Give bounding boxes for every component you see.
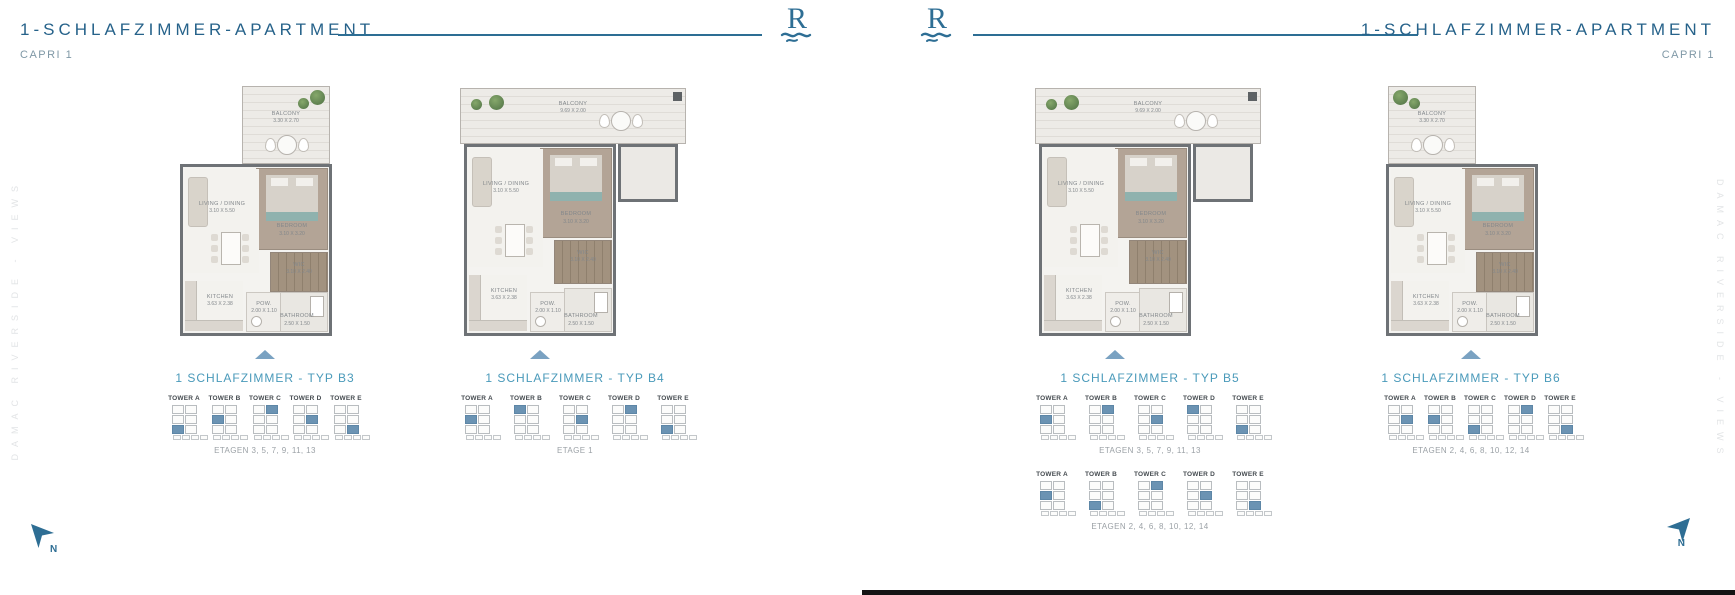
tower-label: TOWER B	[1085, 471, 1117, 478]
podium-strip	[1139, 435, 1174, 440]
walk-in-closet: WIC3.10 X 2.40	[1130, 241, 1186, 283]
unit-cell	[1548, 415, 1560, 424]
podium-strip	[613, 435, 648, 440]
unit-cell	[1102, 491, 1114, 500]
floorplan-slot-b3: BALCONY3.30 X 2.70 BEDROOM3.10 X 3.20 LI…	[162, 86, 368, 342]
north-label: N	[50, 544, 57, 555]
room-label-pow: POW.2.00 X 1.10	[247, 301, 281, 315]
room-label-bathroom: BATHROOM2.50 X 1.50	[281, 313, 313, 327]
tower-row: TOWER ATOWER BTOWER CTOWER DTOWER E	[455, 395, 695, 440]
unit-cell	[612, 415, 624, 424]
living-dining-room: LIVING / DINING3.10 X 5.50	[185, 169, 259, 273]
tower-label: TOWER B	[510, 395, 542, 402]
tower-label: TOWER C	[559, 395, 591, 402]
unit-cell	[1561, 405, 1573, 414]
unit-cell	[306, 405, 318, 414]
unit-cell	[527, 425, 539, 434]
unit-cell	[266, 415, 278, 424]
unit-cell	[563, 425, 575, 434]
kitchen: KITCHEN3.63 X 2.38	[469, 275, 527, 331]
room-label-bedroom: BEDROOM3.10 X 3.20	[257, 223, 327, 237]
apartment-unit-outline: BEDROOM3.10 X 3.20 LIVING / DINING3.10 X…	[180, 164, 332, 336]
podium-strip	[1188, 511, 1223, 516]
highlighted-unit-cell	[347, 425, 359, 434]
etagen-caption: ETAGEN 2, 4, 6, 8, 10, 12, 14	[1030, 522, 1270, 531]
highlighted-unit-cell	[1249, 501, 1261, 510]
highlighted-unit-cell	[1151, 415, 1163, 424]
bed	[266, 175, 318, 221]
unit-cell	[1249, 415, 1261, 424]
unit-cell	[478, 405, 490, 414]
unit-cell	[1089, 415, 1101, 424]
highlighted-unit-cell	[661, 425, 673, 434]
tower-key-plan: TOWER A	[164, 395, 204, 440]
room-label-balcony: BALCONY3.30 X 2.70	[1389, 111, 1475, 125]
powder-room: POW.2.00 X 1.10	[1453, 293, 1487, 331]
tower-label: TOWER A	[1036, 395, 1068, 402]
page-title: 1-SCHLAFZIMMER-APARTMENT	[1361, 20, 1715, 40]
plan-column-b3: BALCONY3.30 X 2.70 BEDROOM3.10 X 3.20 LI…	[162, 86, 368, 455]
tower-key-plan: TOWER C	[1460, 395, 1500, 440]
bed	[1125, 155, 1177, 201]
tower-key-rows: TOWER ATOWER BTOWER CTOWER DTOWER EETAGE…	[1378, 395, 1564, 455]
unit-cell	[1200, 415, 1212, 424]
podium-strip	[335, 435, 370, 440]
bathroom: BATHROOM2.50 X 1.50	[565, 289, 611, 331]
tower-key-plan: TOWER A	[1032, 395, 1072, 440]
floor-plan: BALCONY9.69 X 2.00 BEDROOM3.10 X 3.20 LI…	[460, 86, 690, 336]
highlighted-unit-cell	[1089, 501, 1101, 510]
unit-cell	[334, 425, 346, 434]
podium-strip	[173, 435, 208, 440]
balcony-endcap	[673, 92, 682, 101]
room-label-bathroom: BATHROOM2.50 X 1.50	[565, 313, 597, 327]
podium-strip	[1041, 511, 1076, 516]
page-subtitle: CAPRI 1	[1361, 49, 1715, 61]
unit-cell	[563, 415, 575, 424]
unit-cell	[1249, 425, 1261, 434]
highlighted-unit-cell	[1040, 491, 1052, 500]
unit-cell	[1249, 405, 1261, 414]
podium-strip	[515, 435, 550, 440]
balcony-endcap	[1248, 92, 1257, 101]
unit-cell	[1187, 501, 1199, 510]
highlighted-unit-cell	[1040, 415, 1052, 424]
plan-type-label: 1 SCHLAFZIMMER - TYP B4	[455, 371, 695, 385]
tower-key-plan: TOWER E	[1228, 471, 1268, 516]
tower-key-plan: TOWER B	[1081, 471, 1121, 516]
tower-label: TOWER B	[1424, 395, 1456, 402]
tower-key-plan: TOWER D	[1179, 471, 1219, 516]
highlighted-unit-cell	[172, 425, 184, 434]
tower-label: TOWER E	[1232, 395, 1264, 402]
unit-cell	[1468, 415, 1480, 424]
plan-type-label: 1 SCHLAFZIMMER - TYP B6	[1378, 371, 1564, 385]
side-watermark-right: DAMAC RIVERSIDE - VIEWS	[1711, 130, 1729, 510]
north-compass-left: N	[28, 522, 70, 562]
unit-cell	[1187, 481, 1199, 490]
unit-cell	[514, 425, 526, 434]
unit-cell	[674, 405, 686, 414]
unit-cell	[334, 405, 346, 414]
living-dining-room: LIVING / DINING3.10 X 5.50	[1044, 149, 1118, 267]
unit-cell	[674, 415, 686, 424]
unit-cell	[674, 425, 686, 434]
bathroom: BATHROOM2.50 X 1.50	[281, 293, 327, 331]
unit-cell	[1089, 491, 1101, 500]
walk-in-closet: WIC3.10 X 2.40	[1477, 253, 1533, 291]
podium-strip	[1139, 511, 1174, 516]
unit-cell	[266, 425, 278, 434]
powder-room: POW.2.00 X 1.10	[1106, 293, 1140, 331]
room-label-kitchen: KITCHEN3.63 X 2.38	[197, 294, 243, 308]
unit-cell	[1053, 425, 1065, 434]
plan-column-b6: BALCONY3.30 X 2.70 BEDROOM3.10 X 3.20 LI…	[1378, 86, 1564, 455]
tower-key-plan: TOWER A	[1032, 471, 1072, 516]
highlighted-unit-cell	[1401, 415, 1413, 424]
highlighted-unit-cell	[1102, 405, 1114, 414]
unit-cell	[185, 405, 197, 414]
highlighted-unit-cell	[514, 405, 526, 414]
tower-key-plan: TOWER D	[286, 395, 326, 440]
unit-cell	[1138, 415, 1150, 424]
podium-strip	[1237, 511, 1272, 516]
tower-key-plan: TOWER D	[604, 395, 644, 440]
unit-cell	[1441, 415, 1453, 424]
entry-arrow-icon	[1461, 350, 1481, 359]
unit-cell	[185, 415, 197, 424]
podium-strip	[1188, 435, 1223, 440]
unit-cell	[225, 415, 237, 424]
tower-label: TOWER A	[168, 395, 200, 402]
unit-cell	[465, 405, 477, 414]
unit-cell	[563, 405, 575, 414]
unit-cell	[1053, 405, 1065, 414]
tower-key-plan: TOWER D	[1179, 395, 1219, 440]
etagen-caption: ETAGEN 3, 5, 7, 9, 11, 13	[162, 446, 368, 455]
unit-cell	[661, 405, 673, 414]
corridor-wing	[618, 144, 678, 202]
tower-label: TOWER D	[1183, 395, 1215, 402]
unit-cell	[172, 415, 184, 424]
tower-key-plan: TOWER E	[1228, 395, 1268, 440]
podium-strip	[1469, 435, 1504, 440]
apartment-unit-outline: BEDROOM3.10 X 3.20 LIVING / DINING3.10 X…	[1039, 144, 1191, 336]
apartment-unit-outline: BEDROOM3.10 X 3.20 LIVING / DINING3.10 X…	[464, 144, 616, 336]
corridor-wing	[1193, 144, 1253, 202]
tower-label: TOWER C	[1134, 471, 1166, 478]
unit-cell	[612, 405, 624, 414]
left-page-header: 1-SCHLAFZIMMER-APARTMENT CAPRI 1	[20, 20, 374, 61]
tower-key-rows: TOWER ATOWER BTOWER CTOWER DTOWER EETAGE…	[455, 395, 695, 455]
unit-cell	[1040, 405, 1052, 414]
tower-label: TOWER C	[1134, 395, 1166, 402]
page-title: 1-SCHLAFZIMMER-APARTMENT	[20, 20, 374, 40]
unit-cell	[1481, 415, 1493, 424]
podium-strip	[564, 435, 599, 440]
tower-row: TOWER ATOWER BTOWER CTOWER DTOWER E	[1378, 395, 1564, 440]
unit-cell	[625, 425, 637, 434]
unit-cell	[1200, 501, 1212, 510]
unit-cell	[1521, 415, 1533, 424]
highlighted-unit-cell	[1468, 425, 1480, 434]
kitchen: KITCHEN3.63 X 2.38	[1044, 275, 1102, 331]
unit-cell	[478, 415, 490, 424]
floorplan-slot-b4: BALCONY9.69 X 2.00 BEDROOM3.10 X 3.20 LI…	[455, 86, 695, 342]
sofa	[188, 177, 208, 227]
unit-cell	[1561, 415, 1573, 424]
room-label-pow: POW.2.00 X 1.10	[1106, 301, 1140, 315]
entry-arrow-icon	[255, 350, 275, 359]
bedroom: BEDROOM3.10 X 3.20	[1116, 149, 1186, 237]
unit-cell	[527, 405, 539, 414]
sofa	[1394, 177, 1414, 227]
unit-cell	[1388, 425, 1400, 434]
highlighted-unit-cell	[1236, 425, 1248, 434]
etagen-caption: ETAGEN 3, 5, 7, 9, 11, 13	[1030, 446, 1270, 455]
walk-in-closet: WIC3.10 X 2.40	[555, 241, 611, 283]
sofa	[472, 157, 492, 207]
plant-icon	[1046, 99, 1057, 110]
podium-strip	[1041, 435, 1076, 440]
highlighted-unit-cell	[1151, 481, 1163, 490]
unit-cell	[185, 425, 197, 434]
walk-in-closet: WIC3.10 X 2.40	[271, 253, 327, 291]
podium-strip	[662, 435, 697, 440]
bed	[1472, 175, 1524, 221]
room-label-bathroom: BATHROOM2.50 X 1.50	[1140, 313, 1172, 327]
tower-key-plan: TOWER E	[326, 395, 366, 440]
unit-cell	[1187, 425, 1199, 434]
tower-label: TOWER C	[249, 395, 281, 402]
tower-key-plan: TOWER C	[1130, 471, 1170, 516]
balcony-area: BALCONY3.30 X 2.70	[242, 86, 330, 164]
unit-cell	[253, 425, 265, 434]
unit-cell	[1508, 425, 1520, 434]
room-label-bedroom: BEDROOM3.10 X 3.20	[1116, 211, 1186, 225]
tower-label: TOWER D	[290, 395, 322, 402]
unit-cell	[1089, 425, 1101, 434]
room-label-kitchen: KITCHEN3.63 X 2.38	[1403, 294, 1449, 308]
powder-room: POW.2.00 X 1.10	[247, 293, 281, 331]
tower-label: TOWER E	[1232, 471, 1264, 478]
unit-cell	[1428, 425, 1440, 434]
tower-key-plan: TOWER C	[1130, 395, 1170, 440]
tower-key-plan: TOWER A	[457, 395, 497, 440]
podium-strip	[254, 435, 289, 440]
floorplan-slot-b6: BALCONY3.30 X 2.70 BEDROOM3.10 X 3.20 LI…	[1378, 86, 1564, 342]
unit-cell	[1388, 415, 1400, 424]
unit-cell	[1138, 491, 1150, 500]
balcony-table	[1423, 135, 1443, 155]
unit-cell	[1468, 405, 1480, 414]
unit-cell	[1053, 501, 1065, 510]
tower-key-plan: TOWER B	[1081, 395, 1121, 440]
podium-strip	[1549, 435, 1584, 440]
unit-cell	[1138, 501, 1150, 510]
room-label-balcony: BALCONY3.30 X 2.70	[243, 111, 329, 125]
room-label-wic: WIC3.10 X 2.40	[555, 250, 611, 264]
dining-set	[1068, 223, 1110, 257]
unit-cell	[1236, 415, 1248, 424]
unit-cell	[514, 415, 526, 424]
podium-strip	[1237, 435, 1272, 440]
kitchen: KITCHEN3.63 X 2.38	[1391, 281, 1449, 331]
unit-cell	[306, 425, 318, 434]
etagen-caption: ETAGEN 2, 4, 6, 8, 10, 12, 14	[1378, 446, 1564, 455]
highlighted-unit-cell	[625, 405, 637, 414]
living-dining-room: LIVING / DINING3.10 X 5.50	[469, 149, 543, 267]
highlighted-unit-cell	[266, 405, 278, 414]
floor-plan: BALCONY3.30 X 2.70 BEDROOM3.10 X 3.20 LI…	[1386, 86, 1556, 336]
podium-strip	[1509, 435, 1544, 440]
bathroom: BATHROOM2.50 X 1.50	[1140, 289, 1186, 331]
balcony-area: BALCONY9.69 X 2.00	[460, 88, 686, 144]
highlighted-unit-cell	[212, 415, 224, 424]
podium-strip	[1090, 435, 1125, 440]
tower-label: TOWER D	[1183, 471, 1215, 478]
unit-cell	[1151, 425, 1163, 434]
unit-cell	[1200, 405, 1212, 414]
tower-label: TOWER A	[1384, 395, 1416, 402]
unit-cell	[1040, 501, 1052, 510]
unit-cell	[1236, 405, 1248, 414]
unit-cell	[1428, 405, 1440, 414]
unit-cell	[1138, 405, 1150, 414]
unit-cell	[1521, 425, 1533, 434]
floor-plan: BALCONY9.69 X 2.00 BEDROOM3.10 X 3.20 LI…	[1035, 86, 1265, 336]
unit-cell	[527, 415, 539, 424]
unit-cell	[1401, 405, 1413, 414]
floorplan-slot-b5: BALCONY9.69 X 2.00 BEDROOM3.10 X 3.20 LI…	[1030, 86, 1270, 342]
plan-column-b5: BALCONY9.69 X 2.00 BEDROOM3.10 X 3.20 LI…	[1030, 86, 1270, 531]
highlighted-unit-cell	[1200, 491, 1212, 500]
dining-set	[209, 231, 251, 265]
unit-cell	[347, 405, 359, 414]
room-label-bedroom: BEDROOM3.10 X 3.20	[1463, 223, 1533, 237]
unit-cell	[1508, 405, 1520, 414]
podium-strip	[466, 435, 501, 440]
side-watermark-left: DAMAC RIVERSIDE - VIEWS	[6, 130, 24, 510]
brochure-spread: { "page": { "left": { "title": "1-SCHLAF…	[0, 0, 1735, 595]
tower-label: TOWER D	[1504, 395, 1536, 402]
tower-label: TOWER B	[209, 395, 241, 402]
unit-cell	[293, 405, 305, 414]
unit-cell	[1053, 491, 1065, 500]
north-compass-right: N	[1665, 516, 1707, 556]
highlighted-unit-cell	[1561, 425, 1573, 434]
plant-icon	[489, 95, 504, 110]
balcony-table	[1186, 111, 1206, 131]
unit-cell	[1053, 415, 1065, 424]
unit-cell	[212, 425, 224, 434]
room-label-bathroom: BATHROOM2.50 X 1.50	[1487, 313, 1519, 327]
tower-key-plan: TOWER B	[205, 395, 245, 440]
podium-strip	[1389, 435, 1424, 440]
tower-label: TOWER B	[1085, 395, 1117, 402]
bed	[550, 155, 602, 201]
plant-icon	[1393, 90, 1408, 105]
unit-cell	[1138, 425, 1150, 434]
header-rule-right	[973, 34, 1418, 36]
unit-cell	[576, 405, 588, 414]
unit-cell	[1441, 425, 1453, 434]
tower-key-rows: TOWER ATOWER BTOWER CTOWER DTOWER EETAGE…	[1030, 395, 1270, 531]
bedroom: BEDROOM3.10 X 3.20	[541, 149, 611, 237]
unit-cell	[661, 415, 673, 424]
unit-cell	[1151, 491, 1163, 500]
unit-cell	[1236, 481, 1248, 490]
tower-row: TOWER ATOWER BTOWER CTOWER DTOWER E	[1030, 395, 1270, 440]
balcony-table	[277, 135, 297, 155]
room-label-pow: POW.2.00 X 1.10	[1453, 301, 1487, 315]
living-dining-room: LIVING / DINING3.10 X 5.50	[1391, 169, 1465, 273]
highlighted-unit-cell	[576, 415, 588, 424]
brand-logo-left: R	[774, 4, 820, 54]
page-edge-bar	[862, 590, 1735, 595]
tower-key-rows: TOWER ATOWER BTOWER CTOWER DTOWER EETAGE…	[162, 395, 368, 455]
room-label-pow: POW.2.00 X 1.10	[531, 301, 565, 315]
unit-cell	[1481, 405, 1493, 414]
bedroom: BEDROOM3.10 X 3.20	[1463, 169, 1533, 249]
kitchen: KITCHEN3.63 X 2.38	[185, 281, 243, 331]
header-rule-left	[338, 34, 762, 36]
unit-cell	[293, 425, 305, 434]
unit-cell	[172, 405, 184, 414]
unit-cell	[612, 425, 624, 434]
plant-icon	[471, 99, 482, 110]
balcony-area: BALCONY9.69 X 2.00	[1035, 88, 1261, 144]
unit-cell	[253, 415, 265, 424]
highlighted-unit-cell	[306, 415, 318, 424]
unit-cell	[625, 415, 637, 424]
unit-cell	[1040, 481, 1052, 490]
bathroom: BATHROOM2.50 X 1.50	[1487, 293, 1533, 331]
highlighted-unit-cell	[1521, 405, 1533, 414]
tower-key-plan: TOWER C	[555, 395, 595, 440]
unit-cell	[1187, 491, 1199, 500]
unit-cell	[1249, 491, 1261, 500]
unit-cell	[465, 425, 477, 434]
unit-cell	[1138, 481, 1150, 490]
room-label-kitchen: KITCHEN3.63 X 2.38	[481, 288, 527, 302]
unit-cell	[253, 405, 265, 414]
unit-cell	[1548, 425, 1560, 434]
room-label-bedroom: BEDROOM3.10 X 3.20	[541, 211, 611, 225]
unit-cell	[1481, 425, 1493, 434]
room-label-kitchen: KITCHEN3.63 X 2.38	[1056, 288, 1102, 302]
unit-cell	[212, 405, 224, 414]
tower-row: TOWER ATOWER BTOWER CTOWER DTOWER E	[162, 395, 368, 440]
right-page-header: 1-SCHLAFZIMMER-APARTMENT CAPRI 1	[1361, 20, 1715, 61]
plan-column-b4: BALCONY9.69 X 2.00 BEDROOM3.10 X 3.20 LI…	[455, 86, 695, 455]
tower-key-plan: TOWER A	[1380, 395, 1420, 440]
unit-cell	[1089, 405, 1101, 414]
unit-cell	[1102, 501, 1114, 510]
etagen-caption: ETAGE 1	[455, 446, 695, 455]
north-label: N	[1678, 538, 1685, 549]
podium-strip	[1090, 511, 1125, 516]
unit-cell	[1151, 405, 1163, 414]
unit-cell	[1508, 415, 1520, 424]
unit-cell	[225, 425, 237, 434]
unit-cell	[1151, 501, 1163, 510]
unit-cell	[1089, 481, 1101, 490]
tower-key-plan: TOWER B	[1420, 395, 1460, 440]
tower-label: TOWER C	[1464, 395, 1496, 402]
brand-logo-right: R	[914, 4, 960, 54]
room-label-wic: WIC3.10 X 2.40	[1477, 262, 1533, 276]
